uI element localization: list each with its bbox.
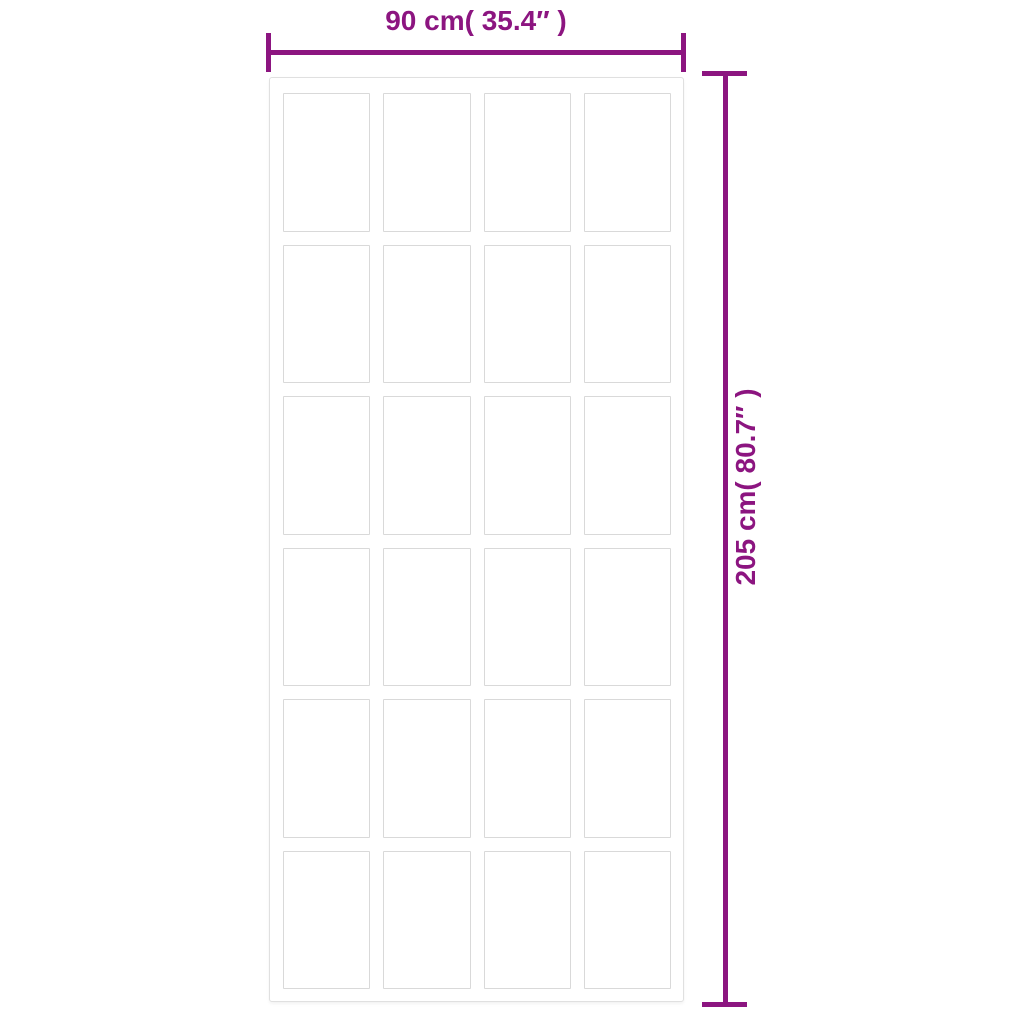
door-panel-grid bbox=[283, 93, 671, 989]
door-panel bbox=[383, 699, 470, 838]
door-panel bbox=[383, 245, 470, 384]
door-panel bbox=[283, 93, 370, 232]
door-outline bbox=[269, 77, 684, 1002]
door-panel bbox=[584, 245, 671, 384]
door-panel bbox=[283, 851, 370, 990]
door-panel bbox=[383, 396, 470, 535]
height-dimension-bottom-cap bbox=[702, 1002, 747, 1007]
door-panel bbox=[283, 548, 370, 687]
door-panel bbox=[383, 851, 470, 990]
door-panel bbox=[484, 245, 571, 384]
dimension-diagram: 90 cm( 35.4″ ) 205 cm( 80.7″ ) bbox=[0, 0, 1024, 1024]
width-dimension-right-cap bbox=[681, 33, 686, 72]
door-panel bbox=[484, 851, 571, 990]
door-panel bbox=[283, 699, 370, 838]
door-panel bbox=[584, 851, 671, 990]
width-dimension-line bbox=[268, 50, 684, 55]
door-panel bbox=[484, 699, 571, 838]
door-panel bbox=[383, 548, 470, 687]
door-panel bbox=[584, 699, 671, 838]
door-panel bbox=[484, 93, 571, 232]
width-dimension-label: 90 cm( 35.4″ ) bbox=[268, 6, 684, 36]
door-panel bbox=[584, 396, 671, 535]
door-panel bbox=[484, 396, 571, 535]
door-panel bbox=[484, 548, 571, 687]
door-panel bbox=[283, 245, 370, 384]
height-dimension-label: 205 cm( 80.7″ ) bbox=[728, 332, 764, 642]
door-panel bbox=[283, 396, 370, 535]
door-panel bbox=[383, 93, 470, 232]
door-panel bbox=[584, 548, 671, 687]
door-panel bbox=[584, 93, 671, 232]
